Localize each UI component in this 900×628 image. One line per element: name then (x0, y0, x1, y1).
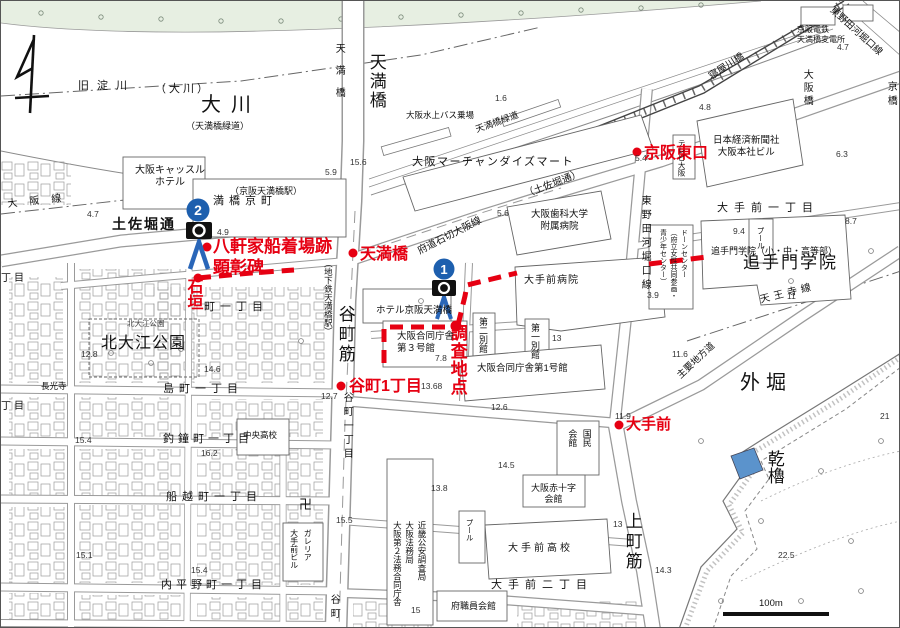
spot-elevation: 21 (880, 411, 889, 421)
bldg-otemon-small: 追手門学院（小・中・高等部） (711, 246, 837, 257)
spot-elevation: 9.4 (733, 226, 745, 236)
street-tanimachi-1chome-n: 谷町一丁目 (340, 392, 352, 462)
red-marker-hachikenya: 八軒家船着場跡 顕彰碑 (213, 237, 332, 278)
bldg-hotel-keihan: ホテル京阪天満橋 (376, 305, 452, 317)
spot-elevation: 15.6 (350, 157, 367, 167)
spot-elevation: 5.6 (497, 208, 509, 218)
spot-elevation: 4.8 (699, 102, 711, 112)
spot-elevation: 22.5 (778, 550, 795, 560)
red-marker-tanimachi-1chome: 谷町1丁目 (349, 377, 422, 397)
spot-elevation: 6.3 (836, 149, 848, 159)
street-tanimachi-s: 谷町 (327, 594, 339, 622)
manji-icon: 卍 (299, 497, 312, 513)
spot-elevation: 4.7 (87, 209, 99, 219)
bldg-nikkei: 日本経済新聞社 大阪本社ビル (713, 135, 780, 158)
district-ishimachi: 町一丁目 (204, 301, 268, 314)
kitaoe-park-small-label: 北大江公園 (127, 319, 165, 328)
bldg-godo3: 大阪合同庁舎 第３号館 (397, 331, 454, 354)
district-otemae-2chome: 大手前二丁目 (491, 579, 593, 592)
district-partial-b: 丁目 (1, 401, 27, 413)
bldg-tv-osaka: テレビ大阪 (677, 139, 686, 177)
camera-marker-2: 2 (186, 199, 212, 270)
spot-elevation: 15.4 (191, 565, 208, 575)
bldg-suijo-bus: 大阪水上バス乗場 (406, 110, 474, 120)
spot-elevation: 11.6 (672, 349, 688, 359)
osakabashi-label: 大阪橋 (800, 69, 812, 108)
river-okawa-label: 大川 (201, 93, 261, 117)
spot-elevation: 15 (411, 605, 420, 615)
bldg-bekkan2: 第二別館 (477, 317, 488, 353)
spot-elevation: 15.5 (336, 515, 353, 525)
okawa-paren-label: （大川） (155, 83, 211, 96)
district-funakoshi: 船越町一丁目 (166, 491, 262, 504)
bldg-koan-chosa: 近畿公安調査局 大阪法務局 大阪第２法務合同庁舎 (391, 521, 428, 606)
tanimachi-suji-label: 谷町筋 (334, 305, 355, 365)
bldg-sekijuji: 大阪赤十字 会館 (531, 483, 576, 505)
scale-bar (723, 612, 829, 616)
spot-elevation: 14.5 (498, 460, 515, 470)
spot-elevation: 15.1 (76, 550, 93, 560)
bldg-fushokuin: 府職員会館 (451, 601, 496, 612)
bldg-hensho: 京阪電鉄 天満橋変電所 (797, 25, 845, 45)
kyobashi-label: 京橋 (884, 81, 896, 109)
bldg-castle-hotel: 大阪キャッスル ホテル (135, 165, 205, 189)
spot-elevation: 15.4 (75, 435, 92, 445)
inui-turret-shape (731, 448, 763, 479)
bldg-chuo-hs: 中央高校 (243, 430, 277, 440)
bldg-godo1: 大阪合同庁舎第1号館 (477, 363, 568, 375)
tosabori-dori-label: 土佐堀通 (112, 216, 176, 233)
scale-bar-label: 100m (759, 598, 783, 610)
spot-elevation: 14.3 (655, 565, 672, 575)
ryokudo-paren-label: （天満橋緑道） (186, 121, 249, 132)
kyu-yodogawa-label: 旧淀川 (78, 80, 135, 93)
bldg-pool-otemon: プール (756, 227, 765, 250)
district-tsurigane: 釣鐘町一丁目 (163, 433, 253, 446)
district-uchihirano: 内平野町一丁目 (161, 579, 266, 592)
district-kyomachi: 満橋京町 (213, 195, 277, 208)
spot-elevation: 13.68 (421, 381, 442, 391)
svg-text:1: 1 (440, 262, 447, 277)
higashinoda-road-label: 東野田河堀口線 (638, 195, 650, 293)
spot-elevation: 14.6 (204, 364, 221, 374)
spot-elevation: 8.7 (845, 216, 857, 226)
survey-map: 2 1 大川 旧淀川 （大川） 寝屋川橋 天満橋 天満橋 大阪橋 京橋 土佐堀通… (0, 0, 900, 628)
riverside-park (1, 1, 761, 32)
bldg-otemae-hs: 大手前高校 (508, 543, 573, 555)
spot-elevation: 13 (552, 333, 561, 343)
red-marker-ishigaki: 石垣 (183, 278, 203, 310)
bldg-bekkan1: 第一別館 (529, 323, 540, 359)
district-shimamachi: 島町一丁目 (163, 383, 243, 396)
spot-elevation: 16.2 (201, 448, 218, 458)
bldg-chokoji: 長光寺 (41, 381, 67, 391)
bldg-kokumin-kaikan: 国民 会館 (565, 429, 594, 447)
svg-text:2: 2 (194, 202, 202, 218)
spot-elevation: 12.6 (491, 402, 508, 412)
sotobori-label: 外堀 (740, 371, 792, 395)
tenmabashi-bridge-large-label: 天満橋 (365, 53, 386, 110)
bldg-galleria: ガレリア 大手前ビル (287, 529, 314, 569)
uemachi-suji-label: 上町筋 (621, 512, 642, 572)
bldg-pool-hs: プール (465, 519, 474, 542)
district-otemae-1chome: 大手前一丁目 (717, 202, 819, 215)
spot-elevation: 1.6 (495, 93, 507, 103)
tenmabashi-bridge-small-label: 天満橋 (332, 43, 344, 109)
bldg-otemae-hospital: 大手前病院 (524, 275, 579, 287)
district-partial-a: 丁目 (1, 273, 27, 285)
inui-yagura-label: 乾櫓 (763, 450, 784, 484)
north-arrow-icon (15, 35, 49, 113)
kitaoe-park-label: 北大江公園 (101, 334, 186, 354)
spot-elevation: 5.9 (325, 167, 337, 177)
red-marker-tenmabashi: 天満橋 (360, 245, 408, 265)
bldg-omm: 大阪マーチャンダイズマート (412, 156, 574, 169)
spot-elevation: 12.8 (81, 349, 98, 359)
bldg-dawn-center: ドーンセンター （府立女性共同参画・ 青少年センター） (657, 229, 689, 299)
red-marker-otemae: 大手前 (626, 416, 671, 434)
spot-elevation: 12.7 (321, 391, 338, 401)
bldg-shika-univ: 大阪歯科大学 附属病院 (531, 209, 588, 232)
spot-elevation: 4.9 (217, 227, 229, 237)
spot-elevation: 13.8 (431, 483, 448, 493)
red-marker-keihan-east: 京阪東口 (644, 144, 708, 164)
